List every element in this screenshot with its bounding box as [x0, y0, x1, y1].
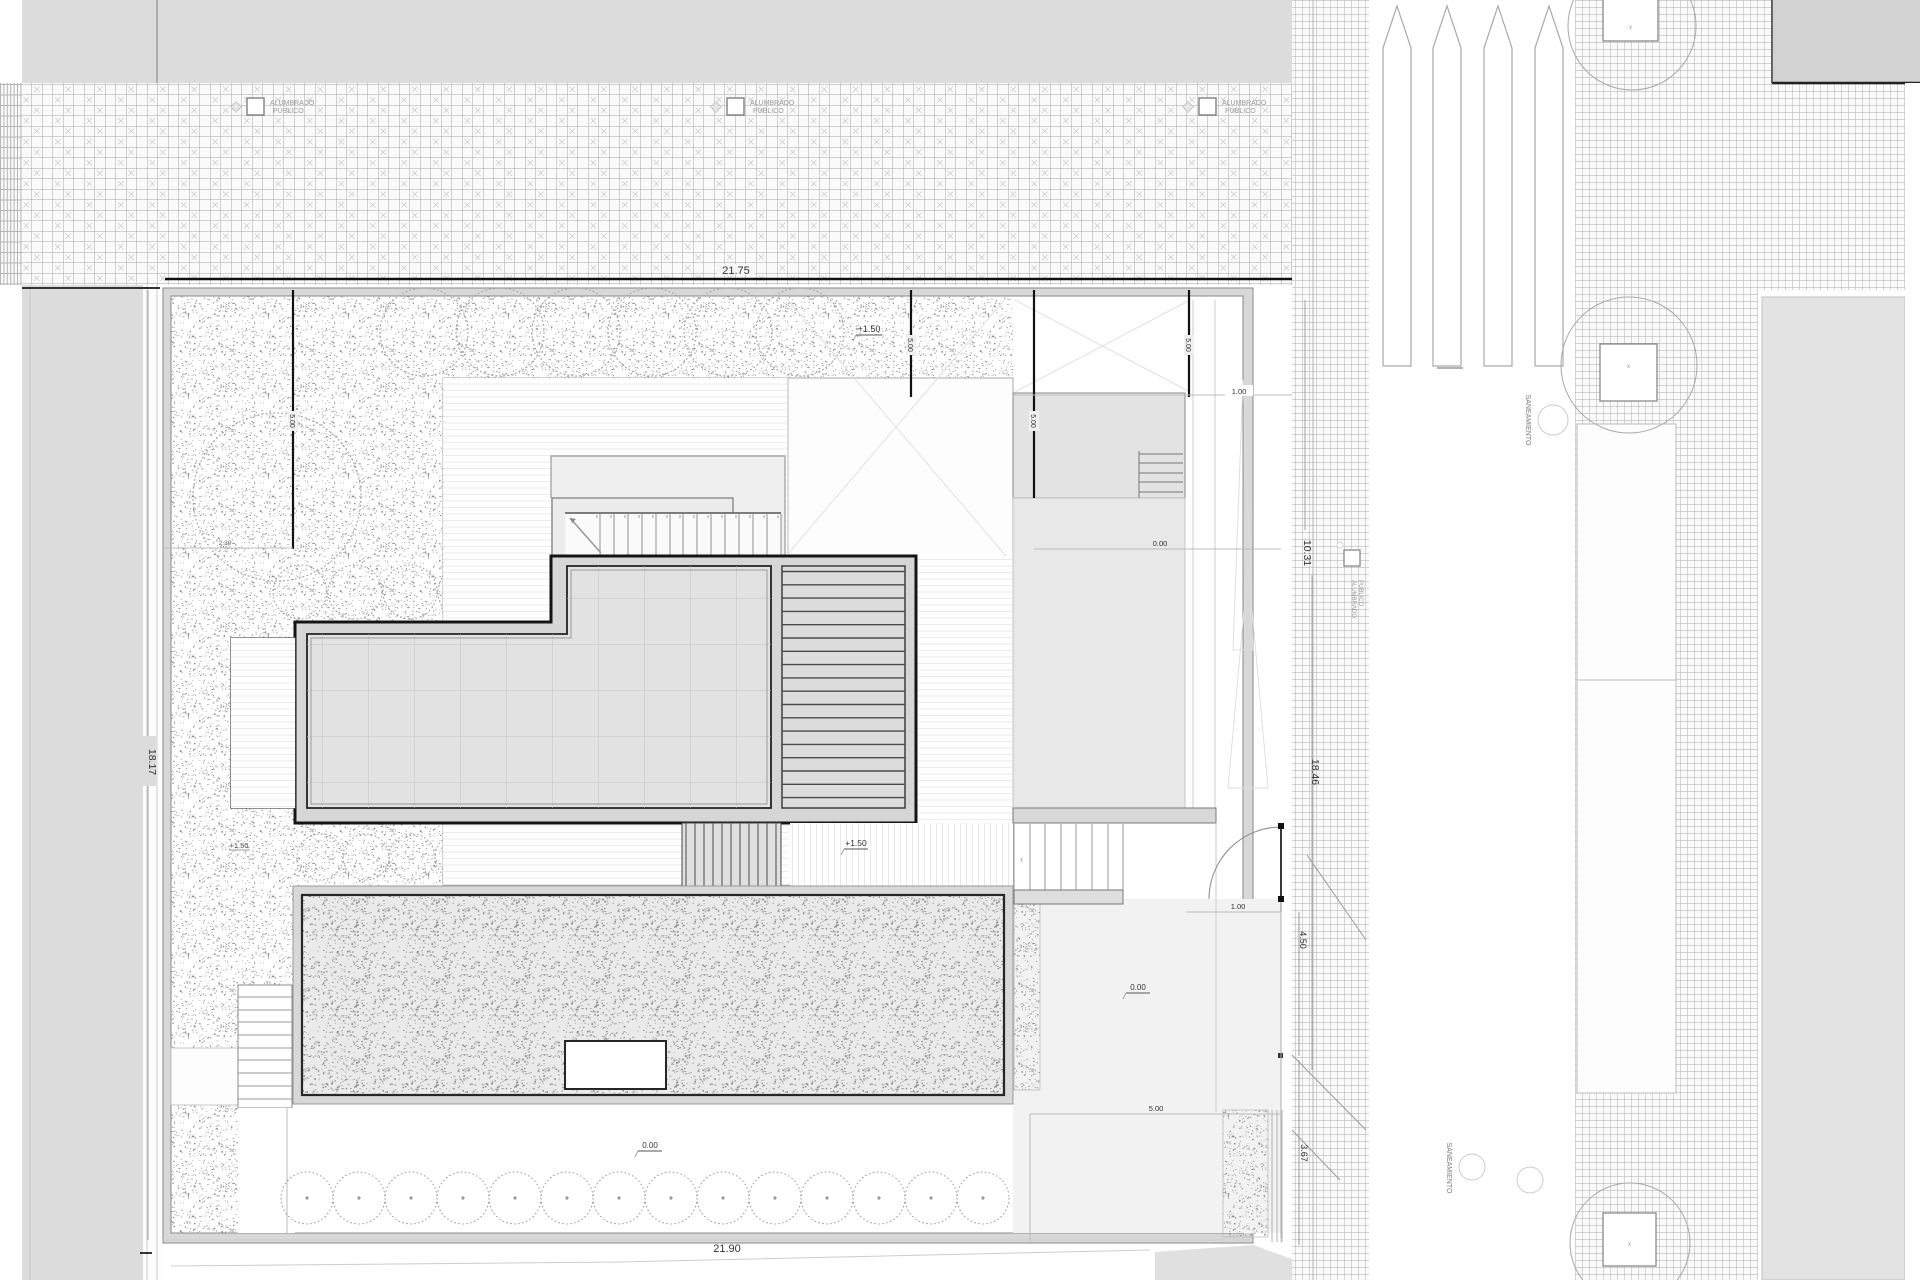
svg-text:PÚBLICO: PÚBLICO: [1225, 106, 1256, 115]
svg-text:5.00: 5.00: [1029, 414, 1036, 428]
svg-text:0.00: 0.00: [1130, 983, 1146, 992]
svg-text:18.46: 18.46: [1309, 759, 1321, 785]
svg-text:PÚBLICO: PÚBLICO: [753, 106, 784, 115]
svg-text:ALUMBRADO: ALUMBRADO: [1350, 580, 1356, 618]
svg-text:21.75: 21.75: [722, 265, 750, 277]
svg-text:‹: ‹: [1020, 854, 1023, 864]
svg-text:+1.50: +1.50: [845, 838, 867, 848]
svg-text:3.67: 3.67: [1299, 1144, 1309, 1162]
svg-text:SANEAMIENTO: SANEAMIENTO: [1524, 395, 1531, 446]
svg-text:x: x: [1628, 1242, 1631, 1248]
svg-text:ALUMBRADO: ALUMBRADO: [270, 100, 315, 107]
svg-text:ALUMBRADO: ALUMBRADO: [1222, 100, 1267, 107]
svg-text:21.90: 21.90: [713, 1243, 741, 1255]
svg-text:0.00: 0.00: [1153, 539, 1168, 548]
svg-text:ALUMBRADO: ALUMBRADO: [750, 100, 795, 107]
svg-text:1.00: 1.00: [1232, 387, 1247, 396]
svg-text:5.00: 5.00: [1149, 1104, 1164, 1113]
svg-text:PÚBLICO: PÚBLICO: [273, 106, 304, 115]
svg-text:PÚBLICO: PÚBLICO: [1357, 580, 1364, 607]
svg-text:x: x: [1627, 364, 1630, 370]
svg-text:5.00: 5.00: [906, 338, 913, 352]
svg-text:+1.50: +1.50: [230, 841, 249, 850]
svg-text:SANEAMIENTO: SANEAMIENTO: [1445, 1143, 1452, 1194]
svg-text:10.31: 10.31: [1301, 540, 1313, 566]
svg-text:5.00: 5.00: [288, 414, 295, 428]
svg-text:0.00: 0.00: [642, 1141, 658, 1150]
svg-text:5.00: 5.00: [1184, 338, 1191, 352]
svg-text:1.00: 1.00: [1231, 902, 1246, 911]
svg-text:4.50: 4.50: [1298, 931, 1308, 949]
svg-text:+1.50: +1.50: [858, 324, 881, 334]
svg-text:18.17: 18.17: [146, 749, 158, 775]
svg-text:2.30: 2.30: [219, 540, 232, 547]
svg-text:x: x: [1629, 25, 1632, 31]
